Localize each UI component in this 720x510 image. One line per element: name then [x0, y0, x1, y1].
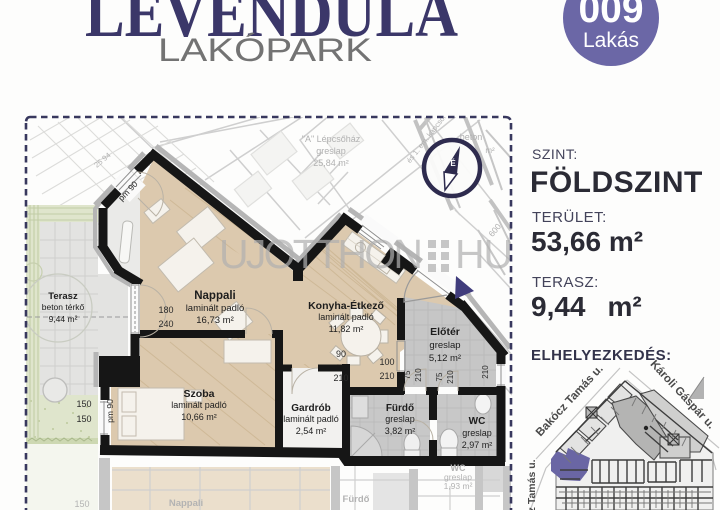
svg-text:3,82 m²: 3,82 m² [385, 426, 416, 436]
svg-text:Gardrób: Gardrób [291, 403, 330, 414]
svg-text:210: 210 [446, 370, 455, 384]
svg-text:greslap: greslap [385, 414, 415, 424]
svg-text:150: 150 [76, 399, 91, 409]
svg-text:5,12 m²: 5,12 m² [429, 353, 461, 364]
svg-text:9,44 m²: 9,44 m² [49, 314, 78, 324]
svg-text:210: 210 [379, 371, 394, 381]
svg-text:Előtér: Előtér [430, 326, 460, 338]
svg-text:HU: HU [455, 231, 513, 277]
svg-text:Fürdő: Fürdő [386, 403, 414, 414]
svg-text:Lakás: Lakás [583, 29, 639, 52]
svg-text:laminált padló: laminált padló [171, 400, 227, 410]
svg-text:Konyha-Étkező: Konyha-Étkező [308, 299, 384, 312]
svg-text:É: É [450, 159, 456, 168]
svg-text:90: 90 [336, 349, 346, 359]
svg-text:25,84 m²: 25,84 m² [313, 158, 349, 168]
svg-text:100: 100 [379, 357, 394, 367]
svg-text:WC: WC [469, 416, 486, 427]
svg-text:greslap: greslap [429, 340, 460, 351]
svg-text:Fürdő: Fürdő [343, 494, 370, 505]
svg-text:LAKÓPARK: LAKÓPARK [158, 32, 372, 68]
svg-text:beton térkő: beton térkő [42, 302, 85, 312]
svg-text:75: 75 [403, 370, 412, 379]
svg-text:1,93 m²: 1,93 m² [444, 481, 473, 491]
svg-text:laminált padló: laminált padló [283, 414, 339, 424]
svg-text:16,73 m²: 16,73 m² [196, 315, 234, 326]
svg-text:210: 210 [481, 365, 490, 379]
svg-text:laminált padló: laminált padló [318, 312, 374, 322]
svg-text:greslap: greslap [316, 146, 346, 156]
svg-text:ócz Tamás u.: ócz Tamás u. [526, 459, 538, 510]
svg-text:240: 240 [158, 319, 173, 329]
svg-text:11,82 m²: 11,82 m² [329, 324, 364, 334]
svg-text:pm 90: pm 90 [105, 399, 115, 423]
svg-text:UJOTTHON: UJOTTHON [219, 231, 423, 277]
svg-text:greslap: greslap [462, 428, 492, 438]
svg-text:75: 75 [435, 372, 444, 381]
svg-text:Nappali: Nappali [194, 290, 236, 302]
svg-text:210: 210 [333, 373, 348, 383]
svg-text:"A" Lépcsőház: "A" Lépcsőház [302, 134, 361, 144]
svg-text:m²: m² [485, 146, 495, 155]
svg-text:Nappali: Nappali [169, 498, 203, 509]
svg-text:2,97 m²: 2,97 m² [462, 440, 493, 450]
svg-text:laminált padló: laminált padló [186, 303, 245, 314]
svg-text:Terasz: Terasz [48, 291, 78, 302]
svg-text:009: 009 [578, 0, 643, 31]
svg-text:150: 150 [76, 414, 91, 424]
svg-text:Szoba: Szoba [184, 388, 215, 400]
svg-text:210: 210 [414, 368, 423, 382]
svg-text:150: 150 [74, 499, 89, 509]
svg-text:10,66 m²: 10,66 m² [181, 412, 217, 422]
svg-text:180: 180 [158, 305, 173, 315]
svg-text:2,54 m²: 2,54 m² [296, 426, 327, 436]
